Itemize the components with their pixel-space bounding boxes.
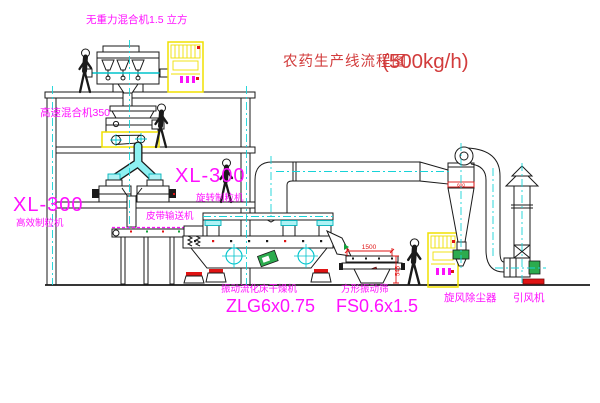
label-right-granulator-model: XL-300 [175, 165, 246, 187]
sieve-dimension-length: 1500 [345, 244, 394, 256]
label-high-speed-mixer: 高速混合机350 [40, 106, 110, 119]
cabinet-knobs [180, 76, 195, 83]
label-sieve-name: 方形振动筛 [341, 283, 389, 295]
person-ground [408, 239, 420, 284]
cad-drawing-canvas: 1500 545 600 [0, 0, 600, 403]
induced-draft-fan [504, 258, 544, 284]
label-left-granulator-model: XL-300 [13, 194, 84, 216]
label-dryer-model: ZLG6x0.75 [226, 296, 315, 316]
label-top-mixer: 无重力混合机1.5 立方 [86, 13, 188, 26]
label-sieve-model: FS0.6x1.5 [336, 296, 418, 316]
fluid-bed-dryer [183, 213, 351, 283]
gravity-free-mixer [86, 46, 168, 115]
control-cabinet-lower [428, 233, 458, 287]
dim-545: 545 [396, 265, 402, 276]
dim-1500: 1500 [362, 244, 377, 251]
vibrating-sieve: 1500 545 [339, 244, 405, 283]
granulator-left [92, 174, 131, 202]
cabinet-knobs [436, 268, 451, 275]
label-belt-conveyor: 皮带输送机 [146, 210, 194, 222]
label-dryer-name: 振动流化床干燥机 [221, 283, 298, 295]
control-cabinet-upper [168, 42, 203, 92]
label-left-granulator-name: 高效制粒机 [16, 217, 64, 229]
page-title-capacity: (500kg/h) [382, 50, 469, 73]
granulator-right [137, 174, 176, 202]
label-right-granulator-name: 旋转制粒机 [196, 192, 244, 204]
label-cyclone: 旋风除尘器 [444, 291, 497, 304]
high-speed-mixer [102, 106, 164, 147]
belt-conveyor [112, 228, 194, 285]
label-fan: 引风机 [513, 291, 545, 304]
